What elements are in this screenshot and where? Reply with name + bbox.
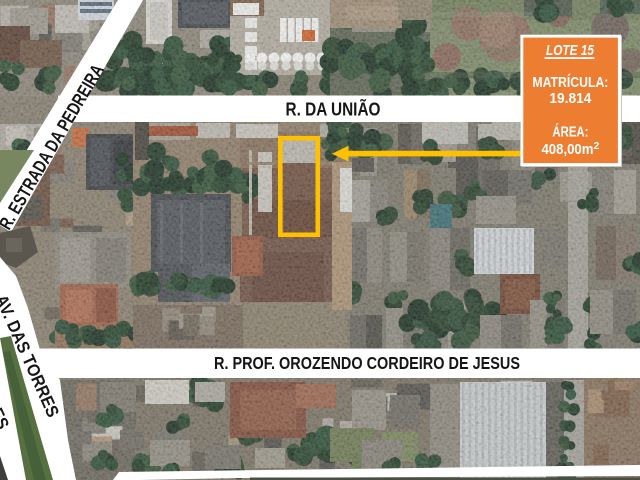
svg-text:R. DA UNIÃO: R. DA UNIÃO xyxy=(286,99,381,120)
svg-text:MATRÍCULA:: MATRÍCULA: xyxy=(532,74,608,91)
svg-text:ÁREA:: ÁREA: xyxy=(552,123,588,140)
svg-text:R. PROF. OROZENDO CORDEIRO DE: R. PROF. OROZENDO CORDEIRO DE JESUS xyxy=(214,353,520,373)
svg-text:19.814: 19.814 xyxy=(549,90,592,107)
svg-text:408,00m2: 408,00m2 xyxy=(541,140,599,158)
svg-text:LOTE 15: LOTE 15 xyxy=(546,42,595,59)
